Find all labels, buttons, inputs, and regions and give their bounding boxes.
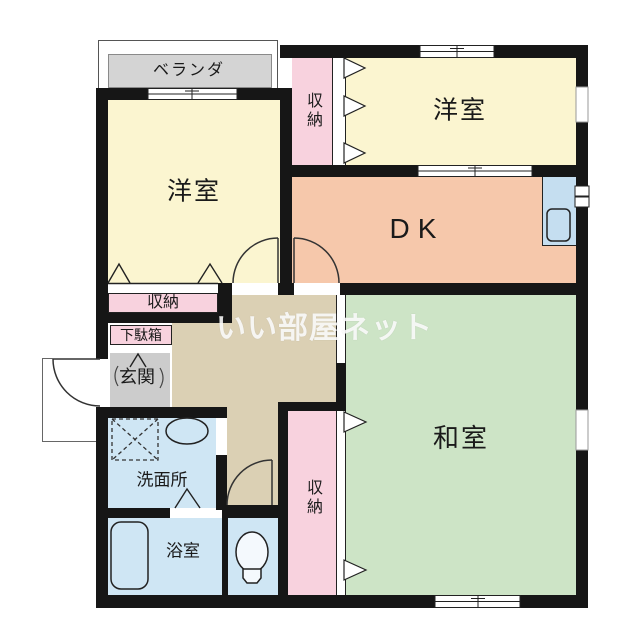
- label-shoe-cabinet: 下駄箱: [120, 328, 162, 342]
- label-dk: DK: [390, 215, 445, 243]
- opening-western1-door: [232, 283, 278, 295]
- wall-hall-right: [278, 402, 288, 595]
- wall-bath-toilet: [222, 518, 228, 595]
- wall-right: [576, 45, 588, 608]
- wall-toilet-top: [222, 505, 278, 518]
- hallway-lower: [227, 402, 278, 508]
- wall-wash-bath: [96, 508, 170, 518]
- kitchen-counter: [542, 177, 576, 246]
- label-entrance: 玄関: [119, 368, 155, 386]
- opening-washroom-door: [216, 418, 227, 455]
- wall-hall-left: [216, 455, 227, 510]
- sliding-door-track-top: [332, 58, 346, 165]
- label-closet-top: 収納: [304, 92, 320, 130]
- watermark: いい部屋ネット: [216, 303, 433, 347]
- wall-western2-dk: [280, 165, 576, 177]
- door-entrance: [53, 359, 100, 406]
- label-closet-mid: 収納: [147, 295, 179, 311]
- floorplan: ベランダ 洋室 洋室 収納 DK 和室 収納 下駄箱 玄関 洗面所 浴室 収納 …: [0, 0, 640, 640]
- wall-veranda-line: [96, 88, 292, 100]
- wall-western1-right: [280, 88, 292, 295]
- room-bathroom: [108, 518, 222, 595]
- label-veranda: ベランダ: [153, 63, 225, 79]
- wall-bottom: [96, 595, 588, 608]
- wall-under-closet: [96, 313, 232, 323]
- label-closet-bottom: 収納: [304, 479, 320, 517]
- label-bathroom: 浴室: [166, 543, 200, 560]
- label-japanese-room: 和室: [433, 425, 489, 451]
- label-washroom: 洗面所: [137, 472, 188, 489]
- opening-dk-door: [294, 283, 340, 295]
- wall-japanese-left: [336, 363, 346, 411]
- room-washroom: [108, 418, 216, 508]
- label-western-room-1: 洋室: [167, 180, 221, 205]
- opening-entrance: [96, 359, 108, 407]
- sliding-door-track-bottom: [336, 411, 346, 595]
- wall-left: [96, 88, 108, 608]
- wall-washroom-top: [96, 407, 227, 418]
- label-western-room-2: 洋室: [433, 99, 487, 124]
- porch-outline: [43, 359, 97, 442]
- room-toilet: [228, 518, 278, 595]
- wall-top: [280, 45, 588, 58]
